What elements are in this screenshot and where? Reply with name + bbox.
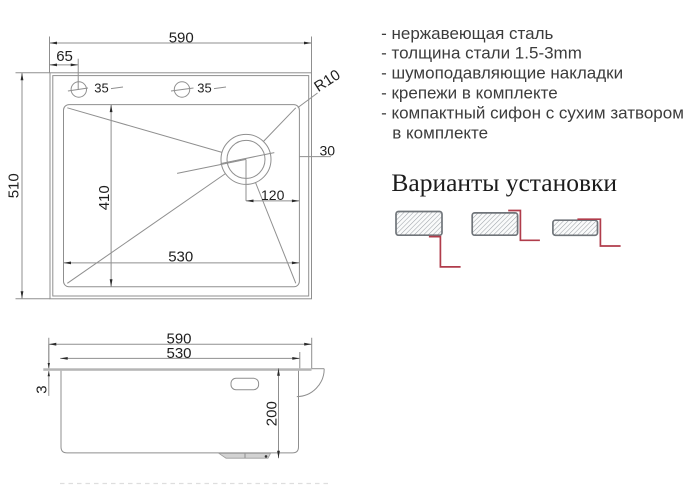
svg-text:590: 590: [169, 29, 194, 46]
svg-text:410: 410: [96, 185, 113, 210]
svg-text:510: 510: [6, 173, 23, 198]
svg-text:R10: R10: [311, 66, 343, 95]
svg-text:- компактный сифон с сухим зат: - компактный сифон с сухим затвором: [381, 103, 684, 122]
svg-text:3: 3: [33, 385, 50, 393]
svg-text:Варианты установки: Варианты установки: [391, 168, 617, 197]
svg-text:в комплекте: в комплекте: [392, 123, 488, 142]
svg-text:35: 35: [94, 80, 108, 95]
svg-text:530: 530: [168, 249, 193, 266]
svg-text:530: 530: [167, 345, 192, 362]
svg-text:- толщина стали 1.5-3mm: - толщина стали 1.5-3mm: [381, 44, 582, 63]
svg-text:30: 30: [320, 143, 336, 159]
svg-text:65: 65: [56, 48, 73, 65]
svg-text:- крепежи в комплекте: - крепежи в комплекте: [381, 84, 558, 103]
svg-text:35: 35: [197, 80, 211, 95]
svg-text:120: 120: [261, 187, 285, 203]
svg-text:- нержавеющая сталь: - нержавеющая сталь: [381, 24, 553, 43]
svg-text:- шумоподавляющие накладки: - шумоподавляющие накладки: [381, 64, 623, 83]
svg-text:200: 200: [263, 401, 280, 426]
